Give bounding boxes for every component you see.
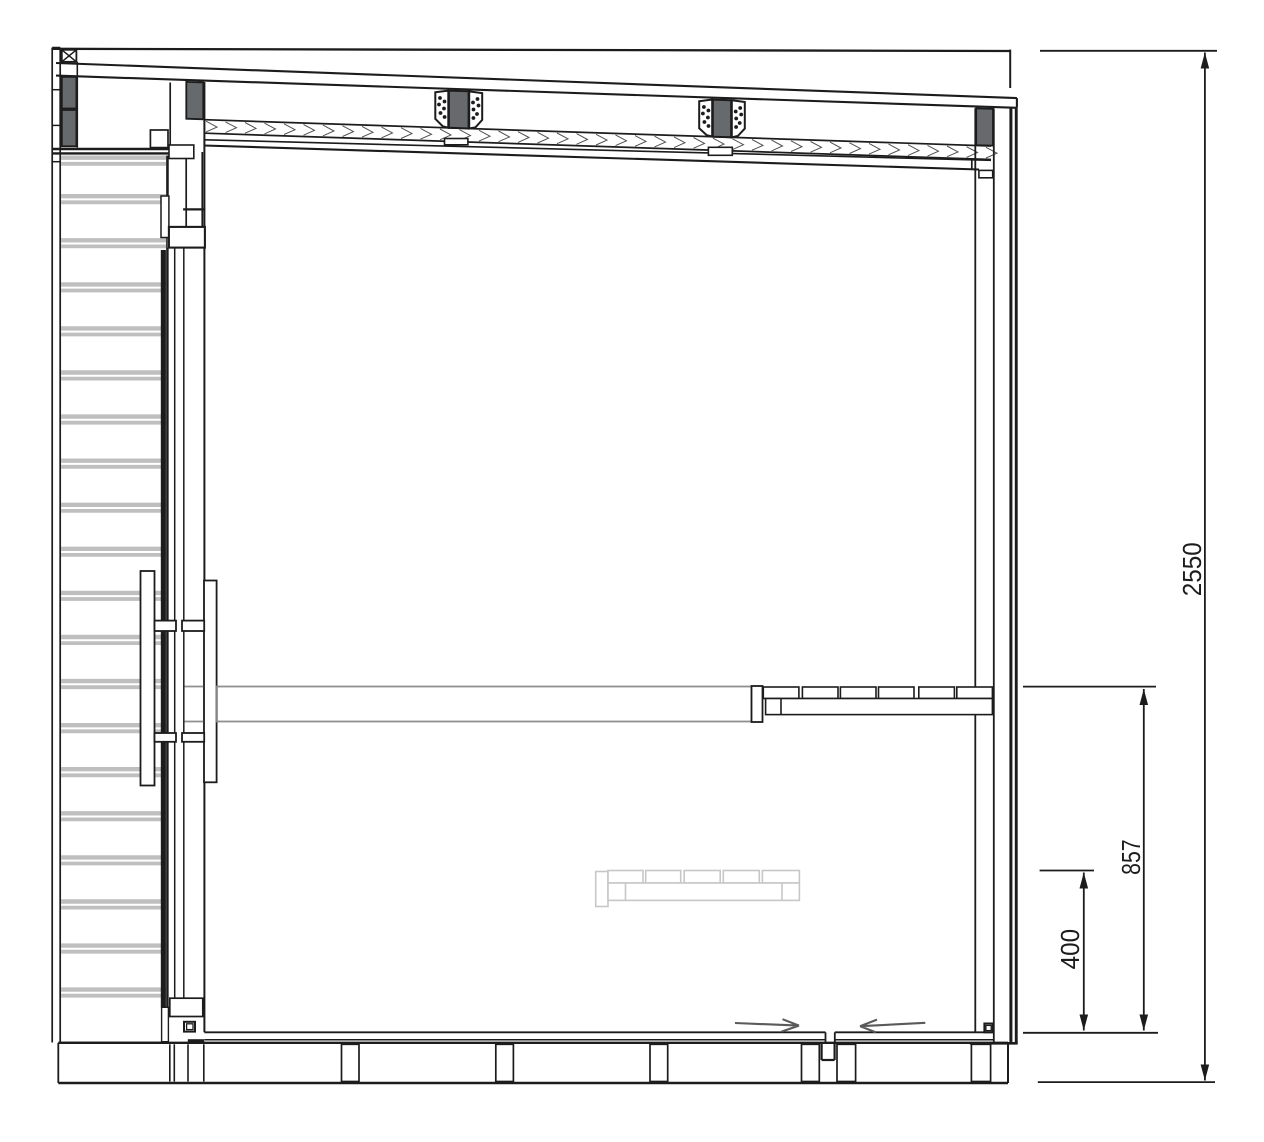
svg-text:2550: 2550: [1177, 542, 1207, 596]
svg-text:857: 857: [1116, 839, 1146, 875]
svg-text:400: 400: [1055, 929, 1085, 970]
